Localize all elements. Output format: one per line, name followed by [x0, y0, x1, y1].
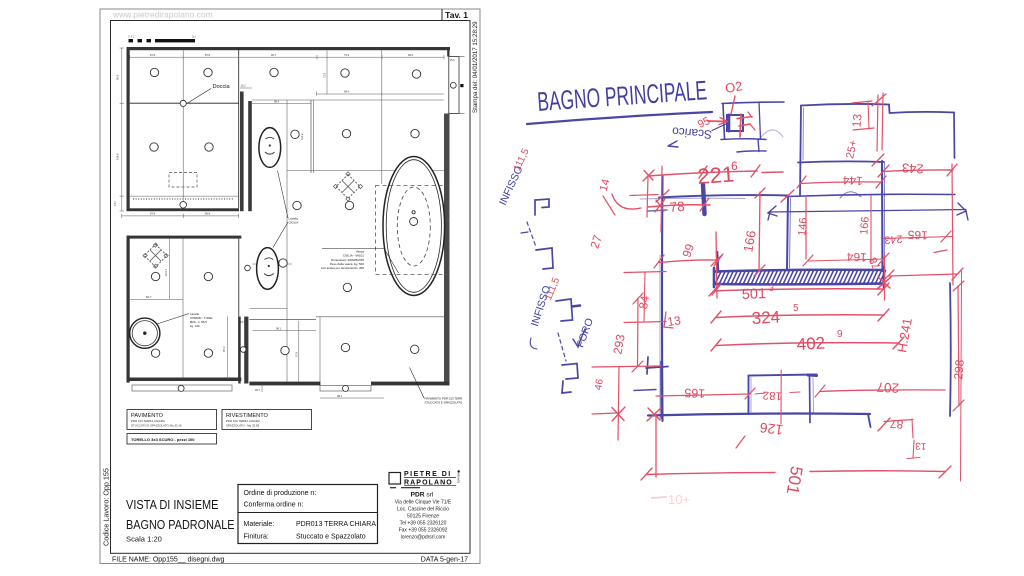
svg-text:Fax +39 055 2326092: Fax +39 055 2326092 — [399, 528, 448, 534]
svg-text:PDR srl: PDR srl — [411, 492, 434, 499]
svg-text:166: 166 — [858, 216, 872, 235]
svg-text:MARMI: MARMI — [457, 473, 461, 483]
svg-text:97.9: 97.9 — [294, 351, 298, 357]
svg-text:13: 13 — [915, 440, 927, 452]
svg-text:VISTA DI INSIEME: VISTA DI INSIEME — [126, 498, 219, 512]
svg-text:Tav. 1: Tav. 1 — [445, 10, 468, 20]
svg-text:Scala 1:20: Scala 1:20 — [126, 535, 162, 544]
svg-text:lorenzo@pdrsrl.com: lorenzo@pdrsrl.com — [401, 535, 446, 541]
svg-text:10+: 10+ — [668, 492, 690, 507]
svg-text:126: 126 — [759, 420, 784, 439]
svg-text:75.9: 75.9 — [322, 72, 326, 78]
svg-text:82.7: 82.7 — [146, 295, 152, 299]
svg-text:Litri acqua per riempimento: 3: Litri acqua per riempimento: 300 — [321, 266, 364, 270]
svg-text:98.4: 98.4 — [344, 90, 350, 94]
svg-text:FILE NAME: Opp155__ disegni.dw: FILE NAME: Opp155__ disegni.dwg — [112, 557, 225, 564]
svg-text:PDR 013 TERRA CHIARA: PDR 013 TERRA CHIARA — [131, 419, 165, 423]
svg-text:BAGNO PADRONALE: BAGNO PADRONALE — [126, 518, 235, 532]
svg-text:78: 78 — [669, 199, 685, 215]
svg-text:O2: O2 — [724, 78, 744, 96]
svg-text:15.6: 15.6 — [450, 58, 456, 62]
svg-text:95.7: 95.7 — [255, 388, 261, 392]
svg-text:243: 243 — [902, 160, 924, 176]
svg-text:STUCCATO E SPAZZOLATO Mq 33.16: STUCCATO E SPAZZOLATO Mq 33.16 — [131, 423, 182, 427]
svg-text:98.1: 98.1 — [276, 327, 282, 331]
svg-text:Materiale:: Materiale: — [244, 521, 275, 528]
svg-text:5: 5 — [793, 303, 799, 314]
svg-text:182: 182 — [762, 389, 782, 402]
svg-text:243: 243 — [884, 232, 903, 246]
svg-text:Doccia: Doccia — [213, 84, 231, 90]
svg-text:13: 13 — [849, 113, 864, 128]
svg-text:TORELLO 3x3 SCURO - pezzi 100: TORELLO 3x3 SCURO - pezzi 100 — [131, 437, 195, 442]
svg-text:104.8: 104.8 — [116, 153, 120, 160]
svg-text:87.8: 87.8 — [205, 53, 211, 57]
svg-text:16.2: 16.2 — [241, 83, 247, 87]
svg-text:75.9: 75.9 — [344, 53, 350, 57]
svg-text:SPAZZOLATO - Mq 35.85: SPAZZOLATO - Mq 35.85 — [226, 423, 260, 427]
svg-text:100.2: 100.2 — [300, 133, 304, 140]
svg-text:Loc. Cascine del Riccio: Loc. Cascine del Riccio — [397, 507, 449, 513]
svg-text:Ordine di produzione n:: Ordine di produzione n: — [244, 490, 317, 497]
svg-text:PDR013 TERRA CHIARA: PDR013 TERRA CHIARA — [296, 521, 376, 528]
svg-text:13: 13 — [666, 313, 681, 329]
svg-text:501: 501 — [742, 286, 767, 303]
svg-text:9: 9 — [837, 329, 843, 340]
svg-text:164: 164 — [846, 249, 867, 264]
svg-text:Codice Lavoro: Opp 155: Codice Lavoro: Opp 155 — [102, 468, 111, 546]
svg-text:Conferma ordine n:: Conferma ordine n: — [244, 502, 304, 509]
svg-text:96.6: 96.6 — [408, 53, 414, 57]
svg-text:98.4: 98.4 — [274, 100, 280, 104]
svg-text:87.8: 87.8 — [150, 212, 156, 216]
svg-text:87.8: 87.8 — [150, 53, 156, 57]
svg-text:Stampa del: 04/01/2017 15:28:2: Stampa del: 04/01/2017 15:28:29 — [472, 21, 479, 113]
svg-text:90.8: 90.8 — [116, 74, 120, 80]
svg-text:324: 324 — [751, 308, 780, 328]
svg-text:96.7: 96.7 — [271, 53, 277, 57]
svg-text:CIGLIA: CIGLIA — [289, 220, 299, 224]
svg-text:PDR 013 TERRA CHIARA: PDR 013 TERRA CHIARA — [226, 419, 260, 423]
svg-text:85.8: 85.8 — [205, 212, 211, 216]
svg-text:www.pietredirapolano.com: www.pietredirapolano.com — [112, 10, 213, 20]
svg-text:207: 207 — [876, 379, 899, 395]
svg-text:Finitura:: Finitura: — [244, 534, 269, 541]
svg-text:98.1: 98.1 — [337, 394, 343, 398]
svg-text:144: 144 — [842, 173, 863, 188]
svg-text:0 .5 1: 0 .5 1 — [128, 35, 135, 39]
svg-text:Via delle Cinque Vie 71/E: Via delle Cinque Vie 71/E — [395, 500, 452, 506]
svg-text:221: 221 — [697, 161, 735, 189]
svg-text:DATA 5-gen-17: DATA 5-gen-17 — [421, 557, 468, 564]
svg-text:20.4: 20.4 — [114, 201, 117, 206]
svg-text:Tel +39 055 2326120: Tel +39 055 2326120 — [400, 521, 447, 527]
svg-text:6: 6 — [731, 159, 738, 173]
svg-text:165: 165 — [684, 385, 706, 400]
svg-text:50125 Firenze: 50125 Firenze — [407, 514, 439, 520]
svg-text:kg. 140: kg. 140 — [190, 324, 200, 328]
svg-text:165: 165 — [907, 227, 928, 242]
svg-text:2m: 2m — [192, 35, 196, 39]
svg-text:3: 3 — [769, 283, 774, 293]
svg-text:104.7: 104.7 — [164, 269, 168, 276]
svg-text:87: 87 — [889, 416, 904, 431]
svg-text:Stuccato e Spazzolato: Stuccato e Spazzolato — [296, 534, 366, 541]
svg-text:STUCCATO E SPAZZOLATO: STUCCATO E SPAZZOLATO — [425, 401, 464, 405]
svg-text:15.7: 15.7 — [240, 320, 246, 324]
svg-text:146: 146 — [796, 217, 810, 236]
svg-text:PIETRE DI: PIETRE DI — [404, 471, 452, 478]
svg-text:97.3: 97.3 — [222, 346, 226, 352]
svg-text:402: 402 — [796, 334, 825, 354]
